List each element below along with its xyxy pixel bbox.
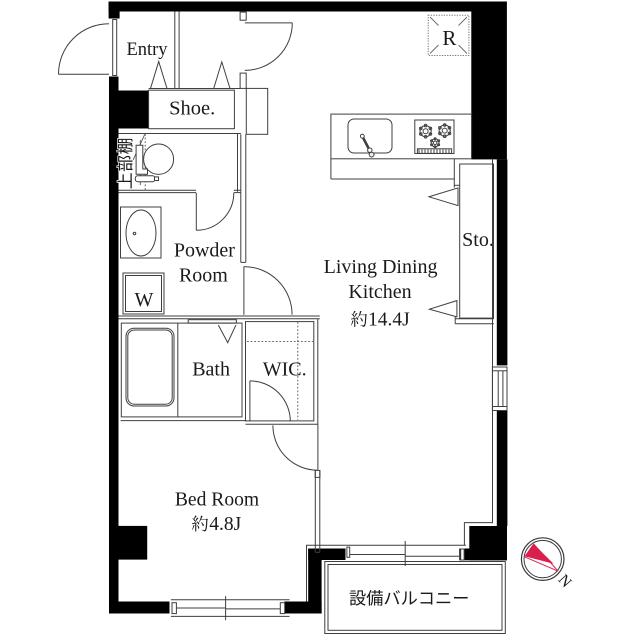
svg-text:Bath: Bath <box>192 358 230 380</box>
svg-text:14.4J: 14.4J <box>368 310 410 331</box>
svg-text:Living Dining: Living Dining <box>324 256 438 278</box>
svg-text:WIC.: WIC. <box>263 358 307 380</box>
svg-text:Bed Room: Bed Room <box>175 490 259 511</box>
svg-text:Entry: Entry <box>126 40 168 60</box>
svg-text:R: R <box>442 26 456 50</box>
svg-text:Powder: Powder <box>174 239 235 261</box>
svg-text:Shoe.: Shoe. <box>169 97 215 119</box>
svg-text:Sto.: Sto. <box>462 229 494 251</box>
svg-text:W: W <box>135 289 154 311</box>
svg-text:Kitchen: Kitchen <box>348 281 411 303</box>
svg-text:Room: Room <box>179 265 228 287</box>
svg-text:4.8J: 4.8J <box>209 514 241 535</box>
